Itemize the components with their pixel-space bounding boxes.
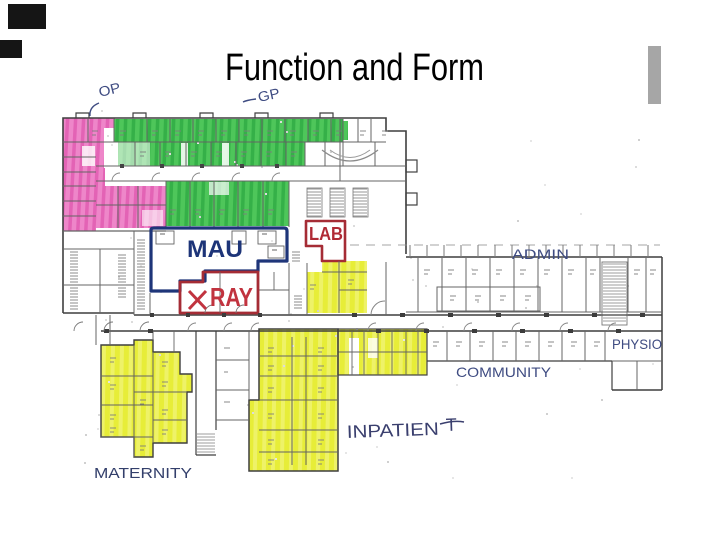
svg-text:PHYSIO: PHYSIO [612,336,662,352]
svg-text:RAY: RAY [210,282,253,312]
svg-text:Function and Form: Function and Form [225,47,484,89]
svg-text:T: T [445,415,457,435]
svg-text:MAU: MAU [187,236,243,263]
svg-text:LAB: LAB [309,224,343,244]
svg-text:MATERNITY: MATERNITY [94,465,192,482]
svg-text:ADMIN: ADMIN [512,246,569,262]
svg-text:COMMUNITY: COMMUNITY [456,364,552,380]
svg-text:INPATIEN: INPATIEN [346,419,439,442]
